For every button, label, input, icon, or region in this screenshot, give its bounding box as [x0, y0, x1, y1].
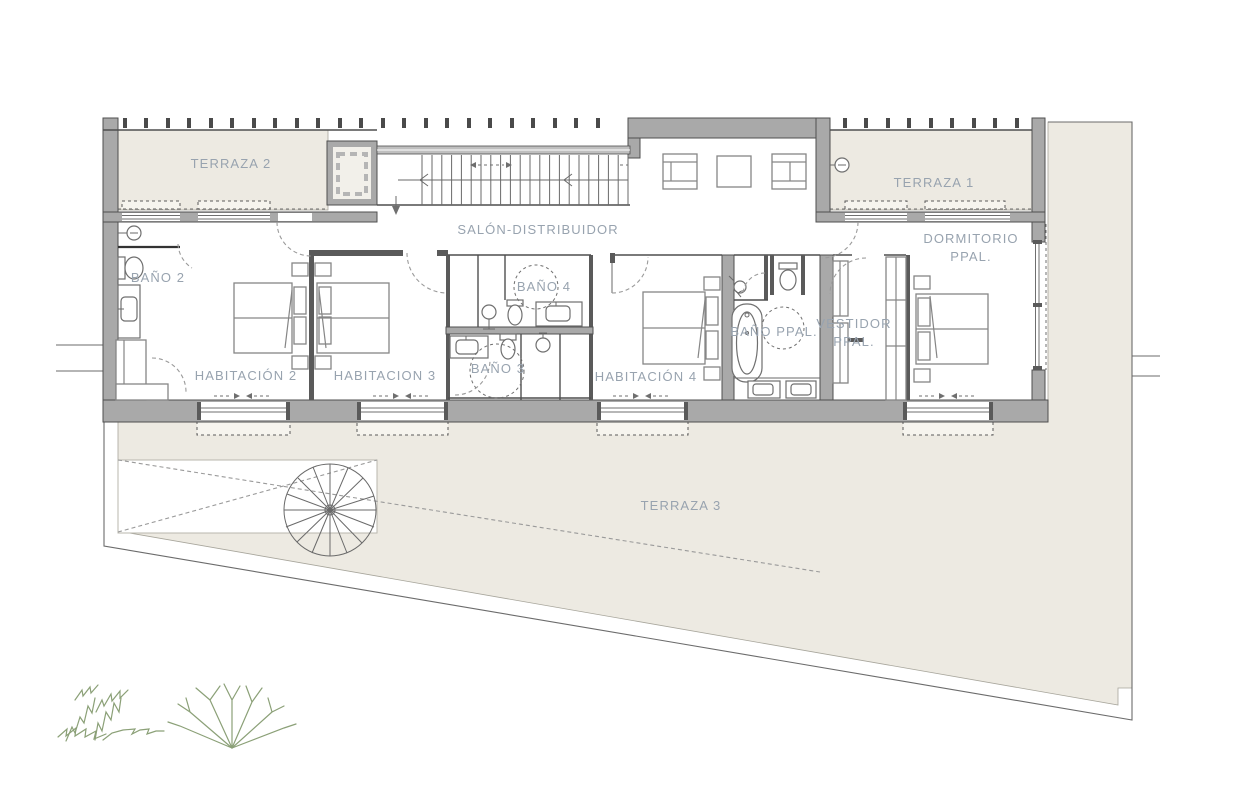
room-label-habitacion-2: HABITACIÓN 2 [195, 368, 298, 383]
floor-plan-drawing: TERRAZA 2 TERRAZA 1 SALÓN-DISTRIBUIDOR B… [0, 0, 1252, 812]
room-label-bano-2: BAÑO 2 [131, 270, 185, 285]
room-label-terraza-2: TERRAZA 2 [191, 156, 272, 171]
room-label-vestidor-ppal: VESTIDOR [816, 316, 891, 331]
spiral-staircase-icon [284, 464, 376, 556]
vanity-sink-icon [536, 302, 582, 326]
room-label-vestidor-ppal-2: PPAL. [833, 334, 874, 349]
plants [58, 684, 296, 748]
room-label-bano-4: BAÑO 4 [517, 279, 571, 294]
room-label-bano-ppal: BAÑO PPAL. [730, 324, 817, 339]
room-label-dormitorio-ppal: DORMITORIO [923, 231, 1018, 246]
plant-icon [168, 684, 296, 748]
salon-furniture [663, 154, 806, 189]
vanity-sink-icon [450, 336, 488, 358]
room-label-dormitorio-ppal-2: PPAL. [950, 249, 991, 264]
armchair-icon [663, 154, 697, 189]
room-label-habitacion-4: HABITACIÓN 4 [595, 369, 698, 384]
room-label-terraza-1: TERRAZA 1 [894, 175, 975, 190]
room-label-habitacion-3: HABITACION 3 [334, 368, 437, 383]
table-icon [717, 156, 751, 187]
neighbor-line-left [56, 345, 103, 371]
terrace-1-floor [830, 130, 1045, 210]
room-label-terraza-3: TERRAZA 3 [641, 498, 722, 513]
plant-icon [58, 685, 164, 741]
toilet-icon [507, 300, 523, 325]
sink-icon [118, 285, 140, 338]
floor-plan-canvas: TERRAZA 2 TERRAZA 1 SALÓN-DISTRIBUIDOR B… [0, 0, 1252, 812]
room-label-bano-3: BAÑO 3 [471, 361, 525, 376]
neighbor-line-right [1132, 356, 1160, 376]
armchair-icon [772, 154, 806, 189]
toilet-icon [779, 263, 797, 290]
pedestal-sink-icon [482, 305, 496, 319]
room-terraza-1 [830, 130, 1045, 210]
room-label-salon-distribuidor: SALÓN-DISTRIBUIDOR [457, 222, 618, 237]
